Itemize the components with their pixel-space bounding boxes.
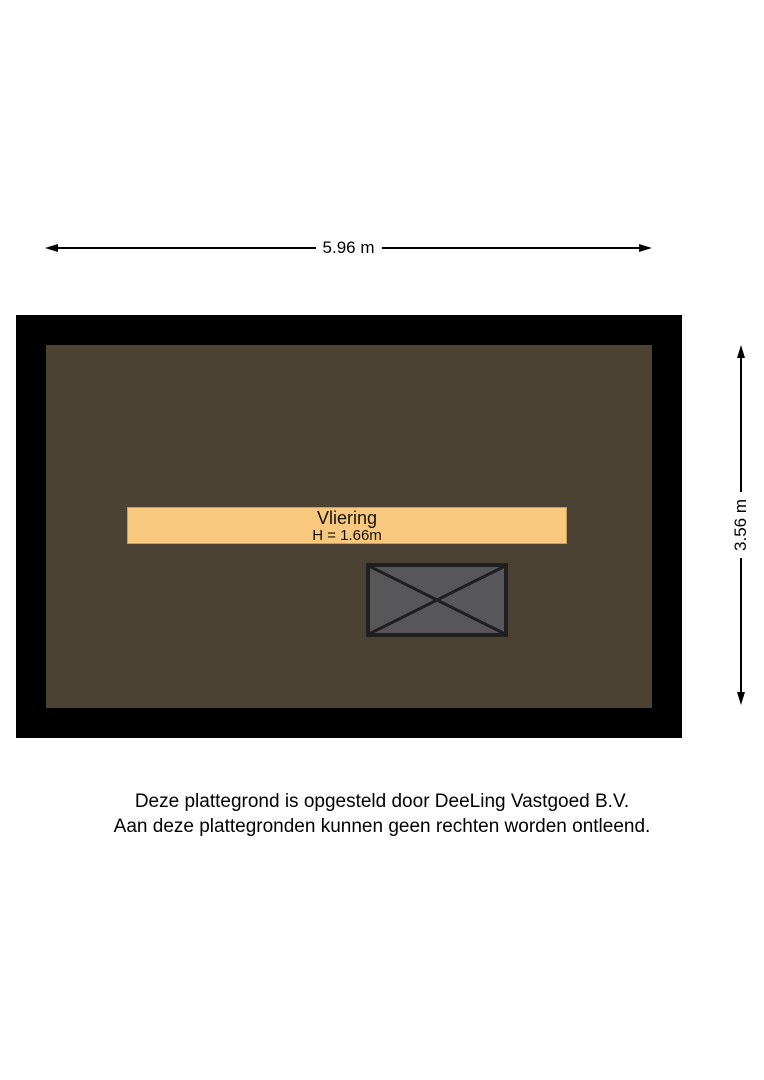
disclaimer-line1: Deze plattegrond is opgesteld door DeeLi… <box>0 789 764 814</box>
arrow-left-icon <box>45 244 58 252</box>
height-dimension: 3.56 m <box>732 345 750 705</box>
width-dimension: 5.96 m <box>45 239 652 257</box>
dimension-line-bottom <box>740 558 742 692</box>
width-dimension-label: 5.96 m <box>316 239 382 257</box>
dimension-line-left <box>58 247 316 249</box>
loft-area: Vliering H = 1.66m <box>127 507 567 544</box>
disclaimer: Deze plattegrond is opgesteld door DeeLi… <box>0 789 764 839</box>
room-height-label: H = 1.66m <box>128 528 566 543</box>
height-dimension-label: 3.56 m <box>732 492 750 558</box>
hatch-opening-icon <box>366 563 508 637</box>
dimension-line-right <box>382 247 640 249</box>
floorplan-page: 5.96 m 3.56 m Vliering H = 1.66m Deze pl… <box>0 0 764 1080</box>
room-name-label: Vliering <box>128 508 566 528</box>
disclaimer-line2: Aan deze plattegronden kunnen geen recht… <box>0 814 764 839</box>
arrow-down-icon <box>737 692 745 705</box>
attic-room-walls: Vliering H = 1.66m <box>16 315 682 738</box>
dimension-line-top <box>740 358 742 492</box>
arrow-right-icon <box>639 244 652 252</box>
attic-floor: Vliering H = 1.66m <box>46 345 652 708</box>
arrow-up-icon <box>737 345 745 358</box>
